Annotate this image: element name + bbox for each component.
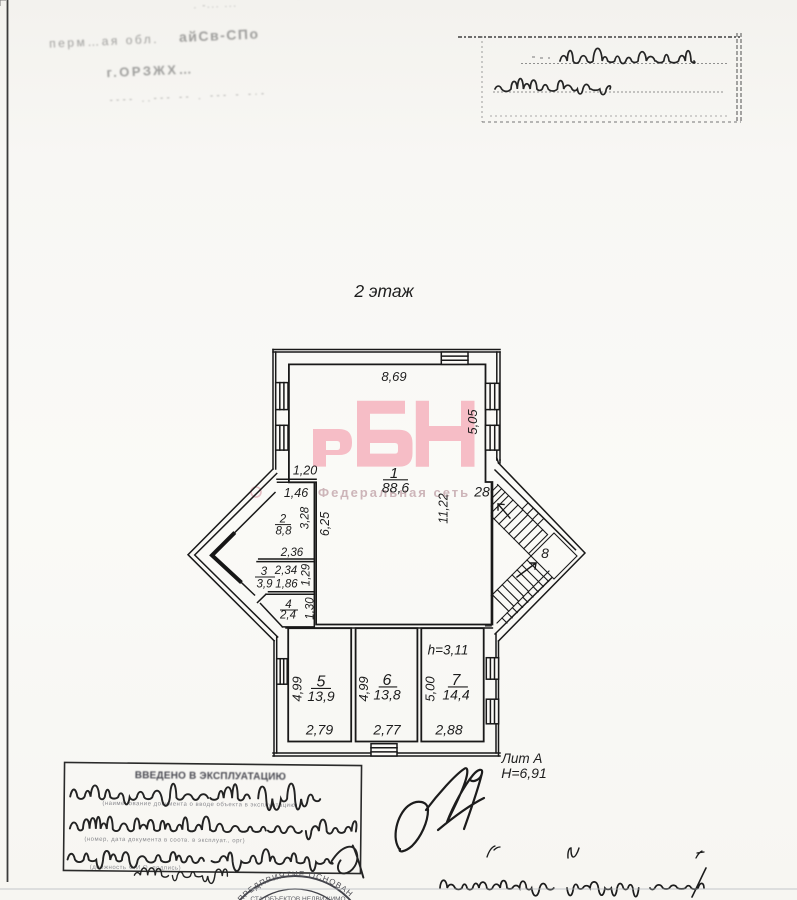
svg-text:1,29: 1,29 xyxy=(301,563,313,586)
svg-text:3,28: 3,28 xyxy=(300,506,312,529)
svg-text:h=3,11: h=3,11 xyxy=(428,643,469,658)
svg-text:2 этаж: 2 этаж xyxy=(353,281,414,301)
svg-text:2,88: 2,88 xyxy=(434,722,462,738)
svg-text:1,30: 1,30 xyxy=(305,597,317,620)
svg-text:(наименование документа о ввод: (наименование документа о вводе объекта … xyxy=(102,801,298,809)
svg-text:2,4: 2,4 xyxy=(279,610,296,622)
svg-text:13,9: 13,9 xyxy=(307,688,334,704)
svg-text:1,86: 1,86 xyxy=(275,579,298,591)
svg-text:г.ОРЗЖХ…: г.ОРЗЖХ… xyxy=(106,61,194,80)
svg-text:(номер, дата документа в соотв: (номер, дата документа в соотв. в эксплу… xyxy=(84,837,245,845)
svg-text:4,99: 4,99 xyxy=(290,676,305,701)
svg-text:---- ..--- -- . --- - -·-: ---- ..--- -- . --- - -·- xyxy=(109,88,267,105)
svg-text:Лит А: Лит А xyxy=(501,751,543,766)
svg-text:2,34: 2,34 xyxy=(274,565,297,577)
svg-text:6,25: 6,25 xyxy=(318,512,332,536)
svg-text:2,77: 2,77 xyxy=(372,722,401,738)
svg-text:5,05: 5,05 xyxy=(465,409,480,435)
svg-text:5,00: 5,00 xyxy=(423,676,438,702)
svg-text:4,99: 4,99 xyxy=(356,676,371,701)
svg-text:--- ··: --- ·· xyxy=(297,0,325,3)
svg-text:Н=6,91: Н=6,91 xyxy=(501,765,547,781)
svg-text:1,20: 1,20 xyxy=(293,464,317,478)
svg-text:1,46: 1,46 xyxy=(284,486,308,500)
svg-text:3: 3 xyxy=(261,566,268,578)
svg-text:3,9: 3,9 xyxy=(257,579,274,591)
svg-text:8,8: 8,8 xyxy=(276,526,293,538)
svg-text:8,69: 8,69 xyxy=(381,369,406,384)
svg-text:14,4: 14,4 xyxy=(442,687,469,703)
svg-text:перм…ая обл.: перм…ая обл. xyxy=(49,32,159,51)
svg-text:. -... ...: . -... ... xyxy=(193,0,237,10)
svg-text:13,8: 13,8 xyxy=(373,687,400,703)
svg-text:28: 28 xyxy=(473,484,490,500)
svg-text:2,36: 2,36 xyxy=(280,547,304,559)
svg-text:11,22: 11,22 xyxy=(437,493,451,523)
svg-text:88,6: 88,6 xyxy=(382,480,409,496)
svg-text:2: 2 xyxy=(279,514,287,526)
svg-text:2,79: 2,79 xyxy=(305,722,333,738)
svg-text:СТА ОБЪЕКТОВ НЕДВИЖИМО: СТА ОБЪЕКТОВ НЕДВИЖИМО xyxy=(250,896,345,900)
svg-text:айСв-СПо: айСв-СПо xyxy=(179,26,260,45)
svg-text:ВВЕДЕНО В ЭКСПЛУАТАЦИЮ: ВВЕДЕНО В ЭКСПЛУАТАЦИЮ xyxy=(135,770,286,783)
svg-text:8: 8 xyxy=(541,545,549,561)
